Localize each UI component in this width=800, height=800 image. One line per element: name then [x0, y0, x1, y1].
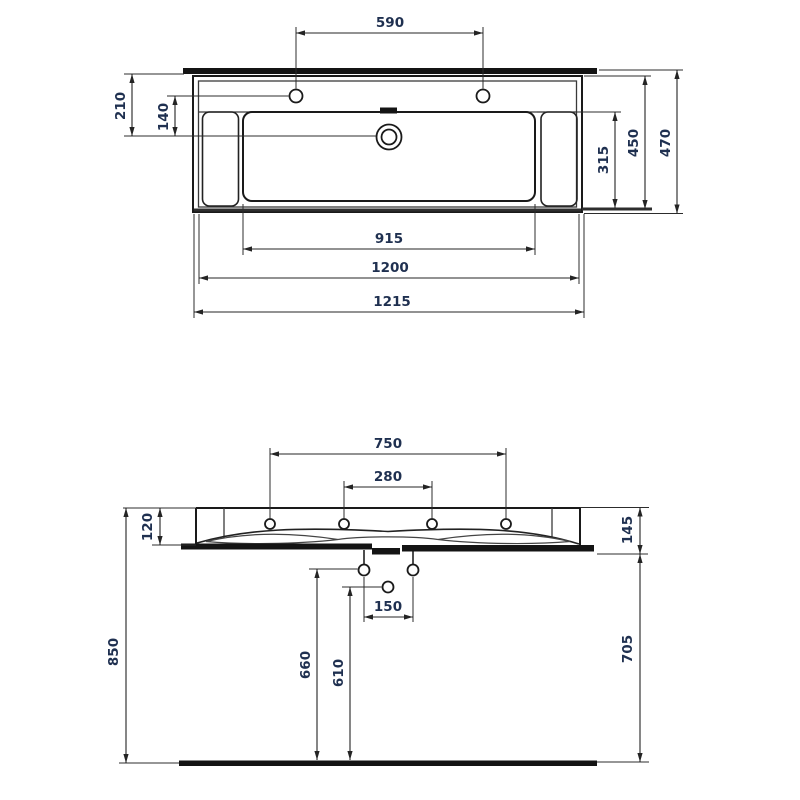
- drain-inner-circle: [382, 130, 397, 145]
- dim-rim-thickness: 120: [140, 508, 196, 545]
- dim-basin-depth: 450: [582, 76, 652, 209]
- technical-drawing-page: 590 210 140 315 450: [0, 0, 800, 800]
- dim-label-140: 140: [156, 103, 172, 131]
- top-left-deck: [203, 112, 239, 206]
- drain-outlet-hole: [383, 582, 394, 593]
- dim-label-150: 150: [374, 599, 402, 615]
- front-bottom-bar-left: [181, 544, 372, 550]
- front-bowl-curve-center: [338, 537, 438, 540]
- dim-inner-faucet-spacing: 280: [344, 469, 432, 519]
- dim-supply-hole-height: 660: [298, 569, 358, 760]
- top-back-edge-bar: [183, 68, 597, 74]
- front-drain-boss: [372, 548, 400, 555]
- washbasin-drawing: 590 210 140 315 450: [0, 0, 800, 800]
- dim-label-590: 590: [376, 15, 404, 31]
- dim-label-850: 850: [106, 638, 122, 666]
- dim-label-660: 660: [298, 651, 314, 679]
- dim-label-120: 120: [140, 513, 156, 541]
- dim-label-280: 280: [374, 469, 402, 485]
- dim-faucet-line-to-drain: 140: [156, 96, 289, 136]
- front-faucet-hole-1: [265, 519, 275, 529]
- front-view: 750 280 120 145 705 850: [106, 436, 649, 766]
- dim-label-210: 210: [113, 92, 129, 120]
- floor-line: [179, 761, 597, 767]
- dim-faucet-hole-spacing: 590: [296, 15, 483, 89]
- dim-label-315: 315: [596, 146, 612, 174]
- supply-hole-left: [359, 565, 370, 576]
- dim-label-145: 145: [620, 516, 636, 544]
- dim-label-450: 450: [626, 129, 642, 157]
- supply-hole-right: [408, 565, 419, 576]
- front-faucet-hole-3: [427, 519, 437, 529]
- dim-rim-height-from-floor: 850: [106, 508, 126, 763]
- dim-front-apron-height: 145: [597, 508, 648, 555]
- dim-label-1215: 1215: [373, 294, 411, 310]
- dim-label-1200: 1200: [371, 260, 409, 276]
- dim-label-915: 915: [375, 231, 403, 247]
- dim-back-edge-to-drain: 210: [113, 74, 376, 136]
- dim-bowl-front-to-back: 315: [537, 112, 621, 208]
- dim-label-750: 750: [374, 436, 402, 452]
- top-right-deck: [541, 112, 577, 206]
- dim-label-705: 705: [620, 635, 636, 663]
- front-faucet-hole-4: [501, 519, 511, 529]
- dim-label-610: 610: [331, 659, 347, 687]
- front-faucet-hole-2: [339, 519, 349, 529]
- dim-underside-height: 705: [620, 554, 640, 762]
- top-view: 590 210 140 315 450: [113, 15, 683, 318]
- dim-label-470: 470: [658, 129, 674, 157]
- front-bowl-curve-right: [438, 534, 570, 543]
- faucet-hole-right: [477, 90, 490, 103]
- overflow-slot: [380, 108, 397, 114]
- front-bottom-bar-right: [402, 545, 594, 552]
- faucet-hole-left: [290, 90, 303, 103]
